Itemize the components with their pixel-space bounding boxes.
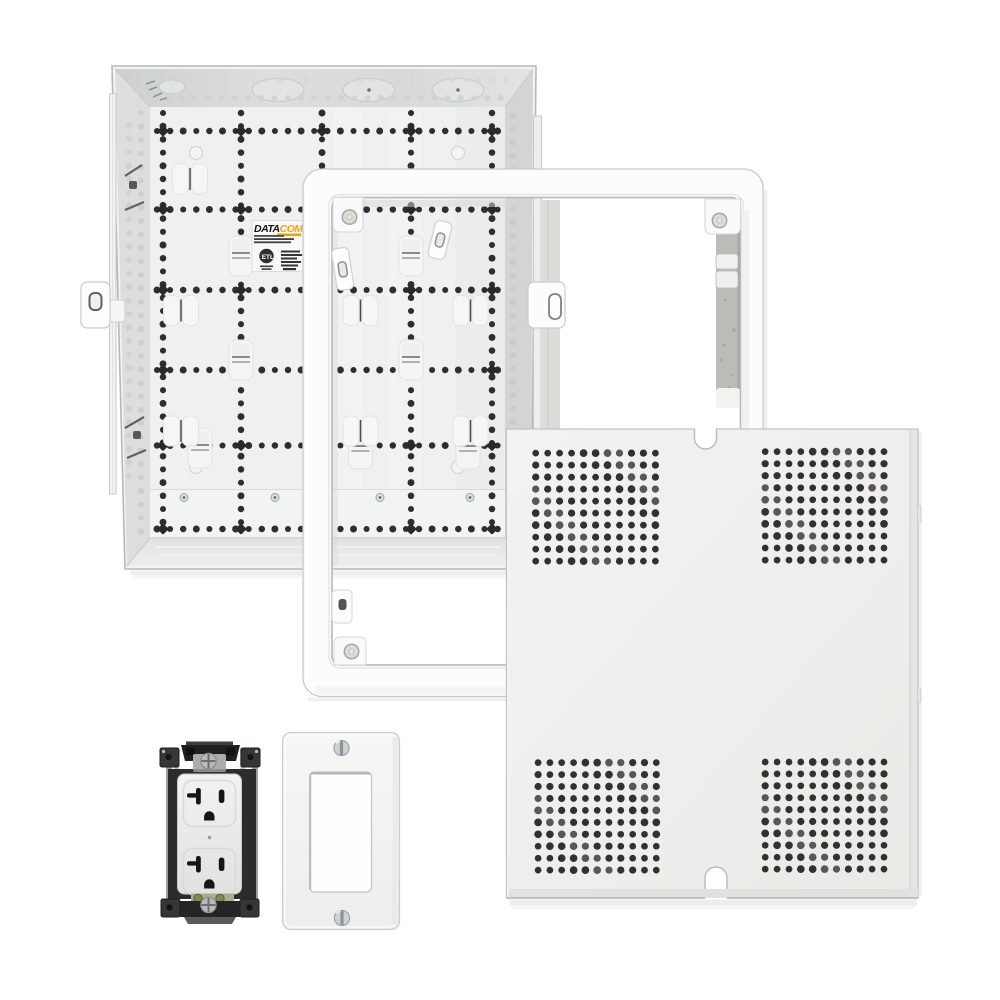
svg-text:ETL: ETL bbox=[262, 254, 274, 261]
